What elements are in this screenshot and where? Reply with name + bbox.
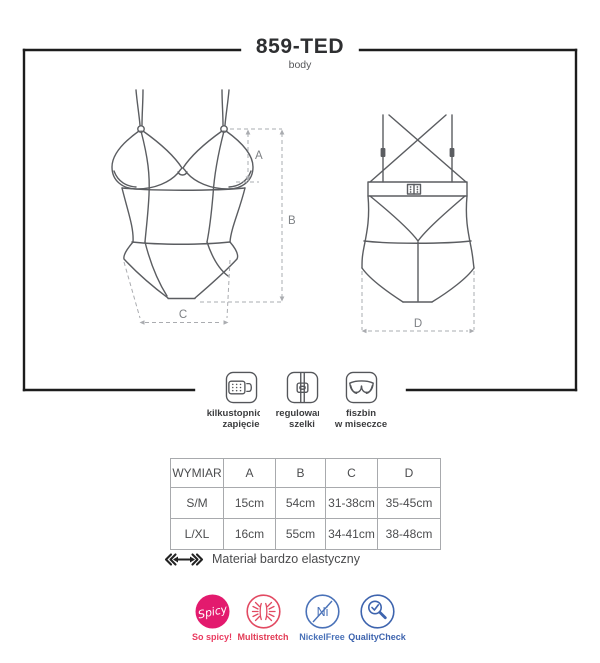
size-cell: S/M xyxy=(171,488,224,519)
dim-label-c: C xyxy=(179,309,187,321)
page-subtitle: body xyxy=(0,59,600,71)
value-cell: 31-38cm xyxy=(326,488,378,519)
multistretch-icon xyxy=(246,594,281,629)
col-header: B xyxy=(276,459,326,488)
dim-label-d: D xyxy=(414,318,422,330)
col-header: C xyxy=(326,459,378,488)
value-cell: 54cm xyxy=(276,488,326,519)
multi-step-closure-icon xyxy=(225,371,258,404)
badge-qualitycheck-label: QualityCheck xyxy=(332,632,422,642)
qualitycheck-icon xyxy=(360,594,395,629)
table-row: S/M 15cm 54cm 31-38cm 35-45cm xyxy=(171,488,441,519)
header: 859-TED body xyxy=(0,36,600,71)
value-cell: 16cm xyxy=(224,519,276,550)
frame-border xyxy=(24,50,576,390)
adjustable-straps-icon xyxy=(286,371,319,404)
size-cell: L/XL xyxy=(171,519,224,550)
spec-sheet: A B C D 859-TED body kilkustopniowe zapi… xyxy=(0,0,600,663)
value-cell: 34-41cm xyxy=(326,519,378,550)
back-view-drawing xyxy=(362,115,474,302)
feature-underwire-label: fiszbin w miseczce xyxy=(319,409,403,430)
feature-underwire: fiszbin w miseczce xyxy=(319,371,403,430)
dim-label-b: B xyxy=(288,215,296,227)
front-view-drawing xyxy=(112,90,253,299)
table-row: L/XL 16cm 55cm 34-41cm 38-48cm xyxy=(171,519,441,550)
material-note-text: Materiał bardzo elastyczny xyxy=(212,552,360,566)
size-table-header-row: WYMIAR A B C D xyxy=(171,459,441,488)
page-title: 859-TED xyxy=(0,36,600,58)
size-table: WYMIAR A B C D S/M 15cm 54cm 31-38cm 35-… xyxy=(170,458,441,550)
value-cell: 38-48cm xyxy=(378,519,441,550)
value-cell: 35-45cm xyxy=(378,488,441,519)
material-note: Materiał bardzo elastyczny xyxy=(163,552,360,566)
value-cell: 15cm xyxy=(224,488,276,519)
badge-qualitycheck: QualityCheck xyxy=(332,594,422,642)
col-header: D xyxy=(378,459,441,488)
col-header: WYMIAR xyxy=(171,459,224,488)
underwired-cup-icon xyxy=(345,371,378,404)
svg-text:Ni: Ni xyxy=(316,605,328,619)
dim-label-a: A xyxy=(255,150,263,162)
stretch-arrows-icon xyxy=(163,553,205,566)
value-cell: 55cm xyxy=(276,519,326,550)
col-header: A xyxy=(224,459,276,488)
